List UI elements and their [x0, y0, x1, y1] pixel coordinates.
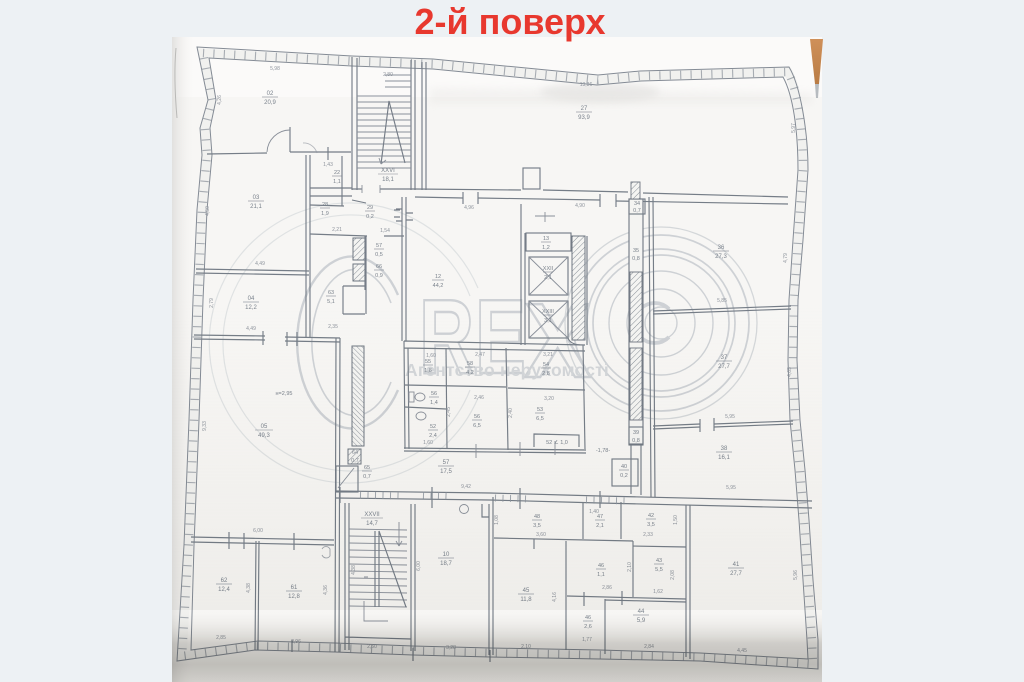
- svg-text:2,1: 2,1: [544, 275, 552, 281]
- svg-text:5,97: 5,97: [791, 123, 797, 133]
- svg-text:0,9: 0,9: [375, 273, 383, 279]
- svg-text:18,1: 18,1: [382, 177, 394, 183]
- svg-text:36: 36: [718, 245, 725, 251]
- svg-text:13,86: 13,86: [580, 82, 593, 88]
- svg-text:93,9: 93,9: [578, 115, 590, 121]
- svg-text:44,2: 44,2: [433, 283, 444, 289]
- svg-text:21,1: 21,1: [250, 204, 262, 210]
- svg-text:2,21: 2,21: [332, 227, 342, 233]
- svg-text:1,43: 1,43: [323, 162, 333, 168]
- svg-text:0,8: 0,8: [632, 256, 640, 262]
- svg-text:1,9: 1,9: [321, 211, 329, 217]
- svg-text:27: 27: [581, 106, 588, 112]
- svg-text:4,49: 4,49: [255, 261, 265, 267]
- svg-text:4,79: 4,79: [783, 253, 789, 263]
- svg-text:XXII: XXII: [543, 266, 554, 272]
- svg-text:13: 13: [543, 236, 549, 242]
- svg-text:20,9: 20,9: [264, 100, 276, 106]
- svg-text:28: 28: [322, 202, 328, 208]
- svg-text:0,5: 0,5: [375, 252, 383, 258]
- svg-text:1,2: 1,2: [542, 245, 550, 251]
- svg-text:29: 29: [367, 205, 373, 211]
- svg-text:2,80: 2,80: [383, 72, 393, 78]
- svg-text:2-й поверх: 2-й поверх: [414, 1, 605, 42]
- svg-text:5,98: 5,98: [270, 66, 280, 72]
- svg-text:4,26: 4,26: [217, 95, 223, 105]
- svg-text:1,54: 1,54: [380, 228, 390, 234]
- svg-text:XXVI: XXVI: [381, 168, 395, 174]
- svg-text:12: 12: [435, 274, 441, 280]
- svg-text:03: 03: [253, 195, 260, 201]
- svg-text:4,50: 4,50: [205, 206, 211, 216]
- svg-text:1,1: 1,1: [333, 179, 341, 185]
- svg-text:66: 66: [376, 264, 382, 270]
- svg-text:34: 34: [634, 201, 640, 207]
- svg-text:22: 22: [334, 170, 340, 176]
- svg-text:4,96: 4,96: [464, 205, 474, 211]
- svg-text:57: 57: [376, 243, 382, 249]
- svg-text:02: 02: [267, 91, 274, 97]
- svg-text:27,3: 27,3: [715, 254, 727, 260]
- svg-text:0,7: 0,7: [633, 208, 641, 214]
- svg-text:63: 63: [328, 290, 334, 296]
- svg-text:4,90: 4,90: [575, 203, 585, 209]
- svg-text:35: 35: [633, 248, 639, 254]
- svg-text:0,2: 0,2: [366, 214, 374, 220]
